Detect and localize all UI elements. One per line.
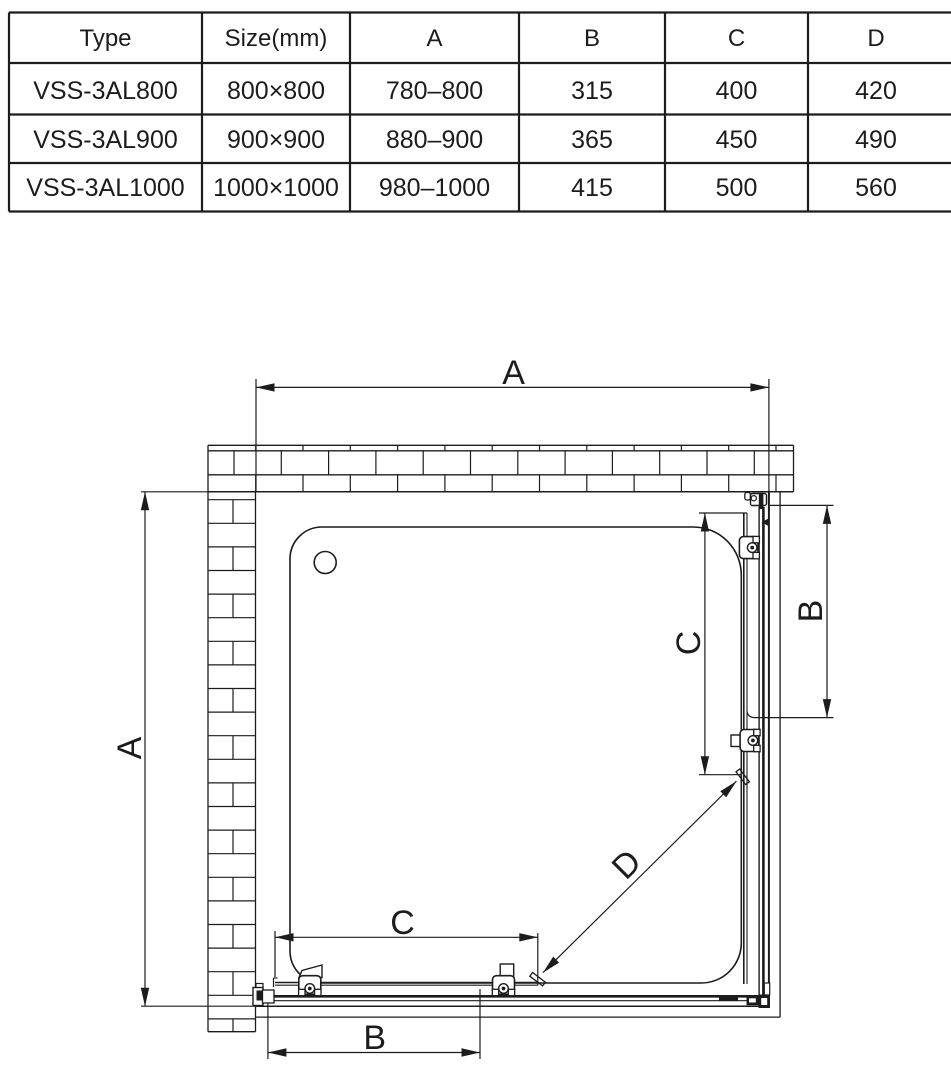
svg-text:B: B [363,1019,386,1057]
svg-text:D: D [867,25,884,52]
svg-text:VSS-3AL800: VSS-3AL800 [33,77,178,105]
svg-text:A: A [426,25,442,52]
svg-text:415: 415 [571,174,613,202]
svg-text:980–1000: 980–1000 [379,174,490,202]
svg-text:420: 420 [855,77,897,105]
svg-text:500: 500 [716,174,758,202]
svg-text:450: 450 [716,126,758,154]
svg-text:B: B [584,25,600,52]
svg-text:780–800: 780–800 [386,77,483,105]
svg-text:315: 315 [571,77,613,105]
svg-text:C: C [390,904,415,942]
svg-text:VSS-3AL1000: VSS-3AL1000 [26,174,184,202]
svg-text:880–900: 880–900 [386,126,483,154]
svg-text:1000×1000: 1000×1000 [213,174,339,202]
svg-text:A: A [111,736,149,759]
svg-text:A: A [502,354,525,392]
svg-text:Size(mm): Size(mm) [225,25,328,52]
svg-text:C: C [670,631,708,656]
svg-text:900×900: 900×900 [227,126,325,154]
svg-text:800×800: 800×800 [227,77,325,105]
svg-text:400: 400 [716,77,758,105]
svg-text:D: D [605,843,649,887]
svg-text:560: 560 [855,174,897,202]
svg-text:490: 490 [855,126,897,154]
svg-text:Type: Type [79,25,131,52]
svg-text:VSS-3AL900: VSS-3AL900 [33,126,178,154]
svg-text:C: C [728,25,745,52]
svg-text:B: B [792,600,830,623]
svg-text:365: 365 [571,126,613,154]
